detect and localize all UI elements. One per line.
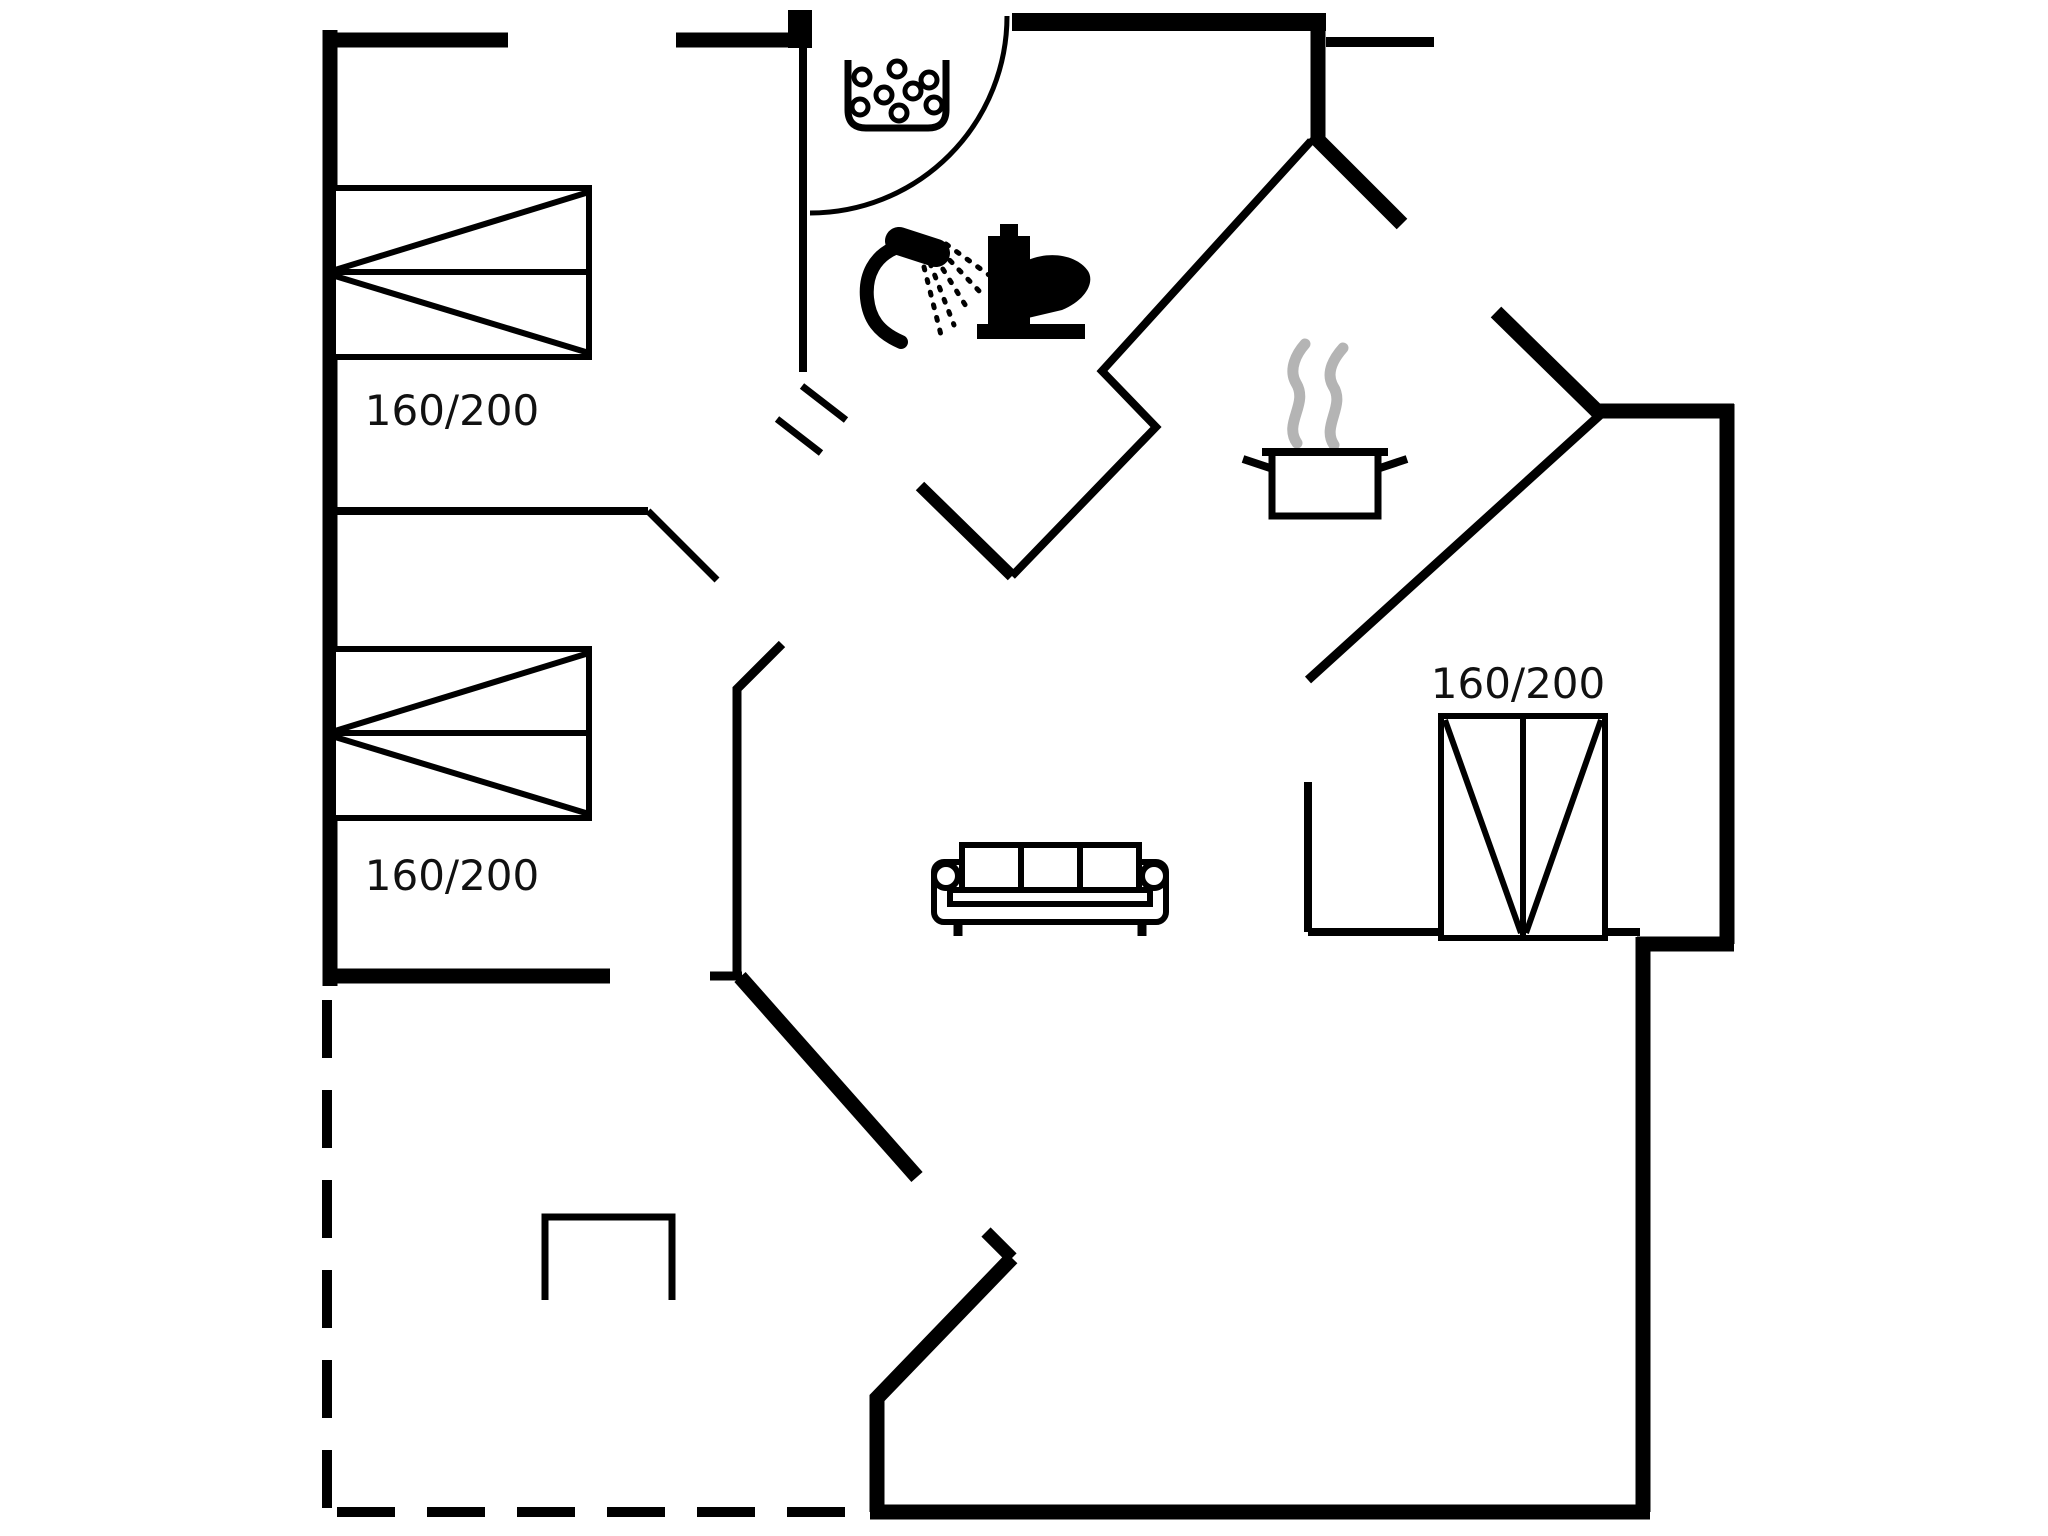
sofa-cushion-3 bbox=[1080, 845, 1139, 890]
pot-body bbox=[1272, 452, 1378, 516]
sofa-armrest-curl-right bbox=[1142, 864, 1166, 888]
double-bed-icon-top-left bbox=[333, 188, 589, 357]
washbasin-icon bbox=[848, 60, 946, 128]
floor-plan-page: 160/200 160/200 160/200 bbox=[0, 0, 2048, 1536]
sofa-icon bbox=[934, 845, 1166, 936]
toilet-base bbox=[977, 324, 1085, 339]
shower-head bbox=[899, 241, 936, 253]
sofa-cushion-2 bbox=[1021, 845, 1080, 890]
bed1-size-label: 160/200 bbox=[365, 386, 539, 435]
bed2-size-label: 160/200 bbox=[365, 851, 539, 900]
bed3-size-label: 160/200 bbox=[1431, 659, 1605, 708]
sofa-armrest-curl-left bbox=[934, 864, 958, 888]
double-bed-icon-middle-left bbox=[333, 649, 589, 818]
plan-background bbox=[0, 0, 2048, 1536]
toilet-tank bbox=[988, 236, 1030, 326]
floor-plan-drawing: 160/200 160/200 160/200 bbox=[0, 0, 2048, 1536]
double-bed-icon-right bbox=[1441, 716, 1605, 938]
toilet-lid-knob bbox=[1000, 224, 1018, 238]
sofa-seat-rail bbox=[950, 890, 1150, 904]
sofa-cushion-1 bbox=[962, 845, 1021, 890]
